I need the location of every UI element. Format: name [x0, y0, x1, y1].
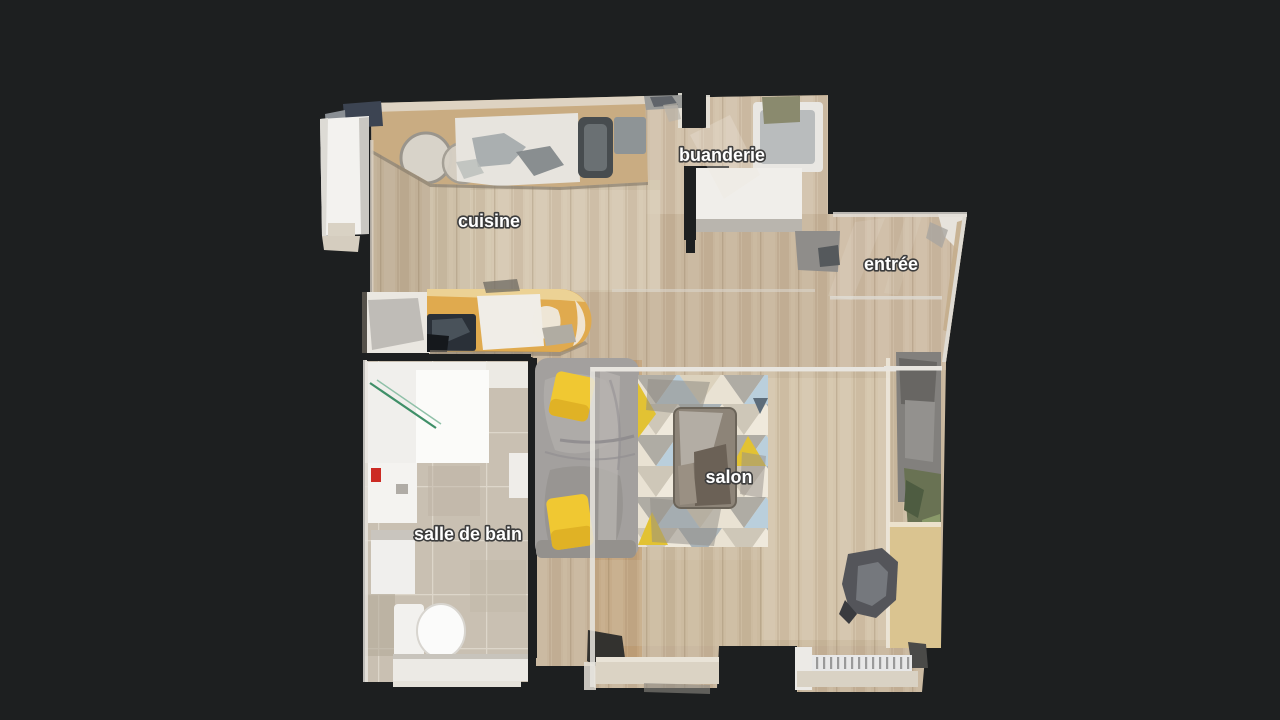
svg-text:cuisine: cuisine	[458, 211, 520, 231]
svg-text:salle de bain: salle de bain	[414, 524, 522, 544]
svg-text:entrée: entrée	[864, 254, 918, 274]
svg-text:buanderie: buanderie	[679, 145, 765, 165]
svg-text:salon: salon	[705, 467, 752, 487]
